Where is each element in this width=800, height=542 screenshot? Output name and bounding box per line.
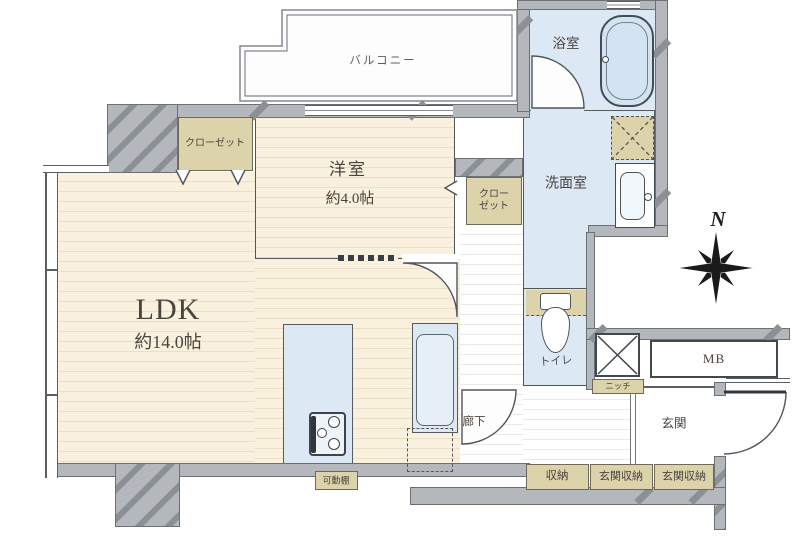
entrance-storage-right-label: 玄関収納 [662, 470, 706, 483]
stove-burner [328, 416, 340, 428]
pillar-bottom-left [115, 463, 180, 527]
wall-topleft-thin [43, 165, 109, 173]
closet-mid-line1: クロー [479, 189, 509, 200]
washroom-label: 洗面室 [545, 177, 587, 194]
vanity-faucet-icon [644, 193, 652, 201]
western-room-label: 洋室 [329, 160, 367, 180]
compass-star-diagonal [698, 250, 734, 286]
balcony-label: バルコニー [349, 55, 416, 69]
wall-topleft-chunk [107, 104, 178, 173]
window-western-room [305, 105, 453, 116]
western-room-area-label: 約4.0帖 [326, 190, 375, 208]
bathtub-faucet-icon [602, 56, 609, 63]
storage-label: 収納 [546, 470, 569, 484]
closet-top-label: クローゼット [185, 138, 245, 150]
shaft-box [595, 333, 640, 377]
wall-left-window-wall [45, 165, 58, 478]
wall-line-above-entrance [635, 386, 715, 388]
wall-left-tick-2 [45, 394, 58, 396]
hallway-label: 廊下 [463, 416, 486, 430]
bathroom-label: 浴室 [553, 36, 580, 52]
sliding-door-track [338, 255, 398, 261]
wall-entrance-right-upper [714, 382, 726, 396]
vanity-basin [620, 172, 645, 220]
door-opening-ldk [402, 254, 458, 263]
wall-toilet-right [586, 232, 595, 390]
closet-mid-label: クロー ゼット [479, 189, 509, 213]
floor-plan: N バルコニー 洋室 約4.0帖 LDK 約14.0帖 浴室 洗面室 トイレ 廊… [0, 0, 800, 542]
wall-bath-top [517, 0, 668, 10]
entrance-storage-left-label: 玄関収納 [599, 470, 643, 483]
compass-icon: N [666, 196, 766, 316]
door-opening-bathroom [531, 106, 584, 113]
wall-line-right-of-mb [726, 378, 790, 383]
entrance-label: 玄関 [661, 417, 686, 432]
entrance-step-line [630, 390, 636, 464]
ldk-label: LDK [136, 292, 201, 328]
washing-machine-area [611, 116, 654, 160]
refrigerator-space-dashed [407, 428, 453, 472]
window-bathroom [607, 1, 640, 9]
stove-burner [317, 428, 327, 438]
closet-mid-line2: ゼット [479, 201, 509, 212]
toilet-label: トイレ [539, 354, 573, 369]
movable-shelf-label: 可動棚 [322, 476, 349, 487]
wall-left-tick-1 [45, 269, 58, 271]
niche-label: ニッチ [605, 381, 631, 391]
stove-grill-bar [311, 416, 316, 453]
wall-above-closet-mid [455, 158, 523, 177]
room-western-floor [255, 117, 455, 259]
compass-north-label: N [709, 207, 726, 231]
ldk-area-label: 約14.0帖 [134, 332, 202, 354]
compass-star-cardinal [678, 230, 754, 306]
hallway-floor-horizontal [523, 390, 635, 465]
bathtub-inner-line [606, 22, 648, 100]
stove-burner [328, 438, 340, 450]
door-arc-entrance [724, 392, 786, 454]
refrigerator-symbol [416, 334, 454, 426]
room-washroom-floor-ext [523, 230, 588, 290]
meter-box-label: MB [703, 351, 725, 367]
